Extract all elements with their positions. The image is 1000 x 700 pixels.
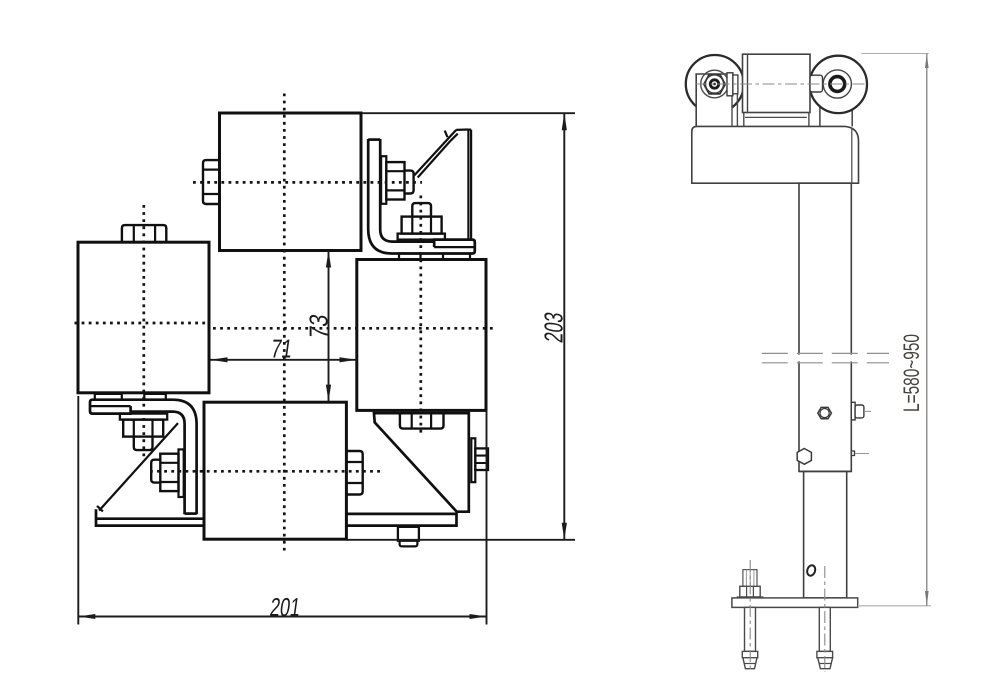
svg-text:201: 201 bbox=[268, 592, 302, 622]
svg-text:L=580~950: L=580~950 bbox=[899, 334, 924, 412]
svg-text:203: 203 bbox=[539, 310, 569, 344]
svg-text:71: 71 bbox=[269, 334, 294, 364]
svg-text:73: 73 bbox=[304, 312, 334, 340]
